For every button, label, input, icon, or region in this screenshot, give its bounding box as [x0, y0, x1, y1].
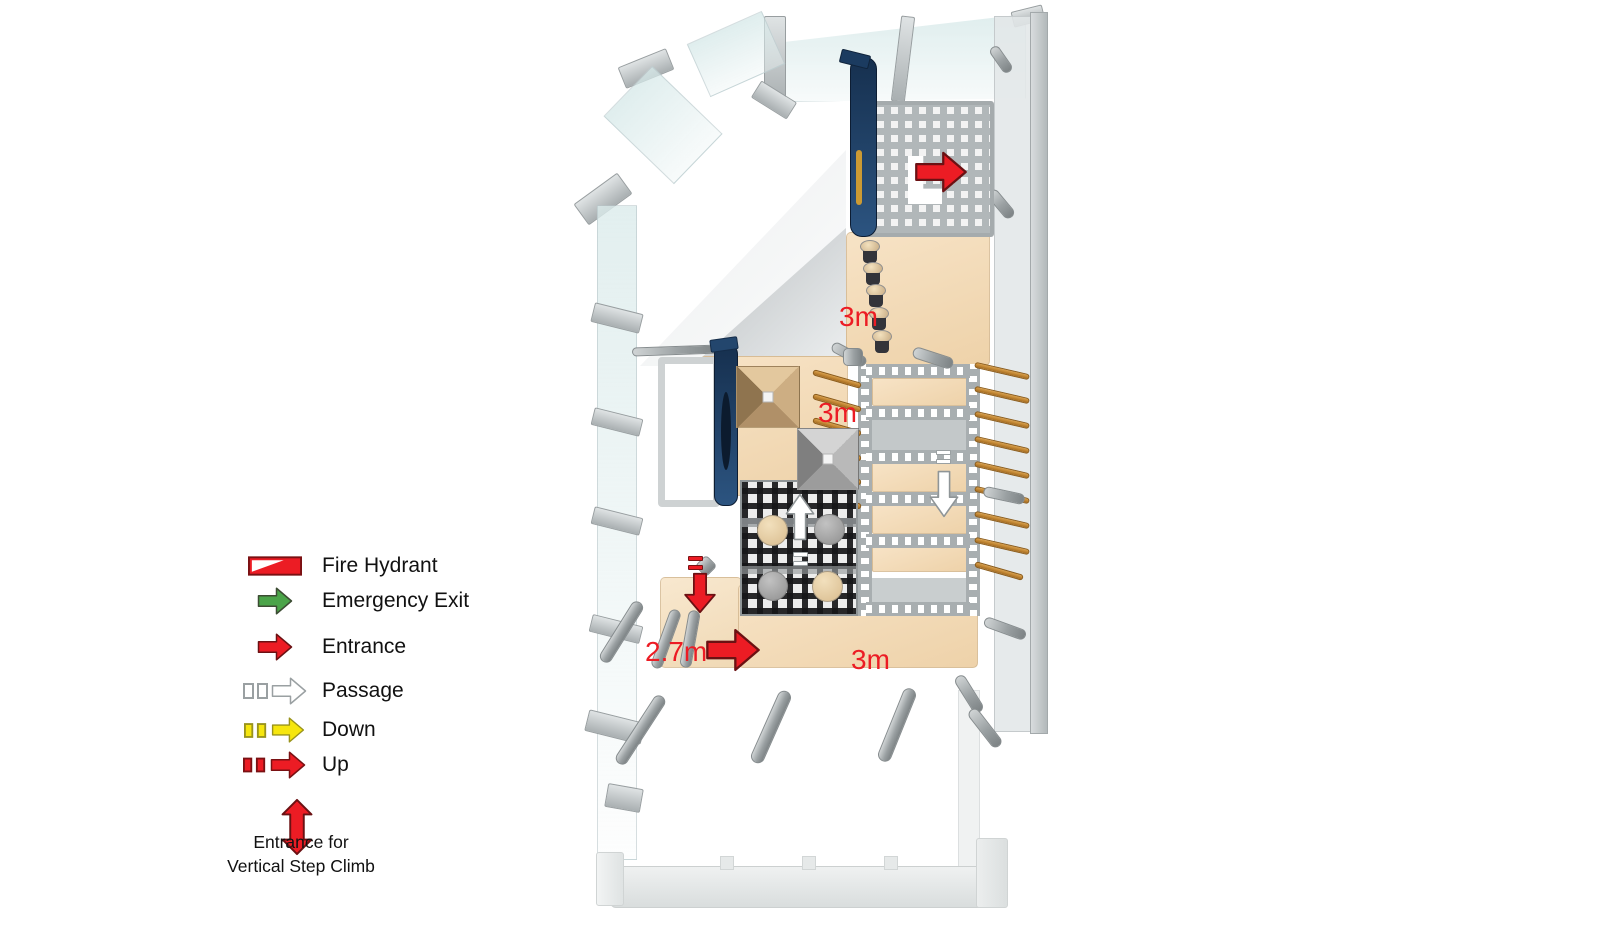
bottom-wall-band	[610, 866, 1002, 908]
trellis-bar	[866, 602, 970, 616]
dimension-label: 2.7m	[645, 638, 707, 666]
fire-hydrant-icon	[238, 556, 312, 576]
pyramid-funnel	[736, 366, 800, 428]
trellis-cell	[872, 420, 968, 450]
dimension-label: 3m	[839, 303, 878, 331]
pyramid-apex	[823, 454, 834, 465]
vertical-step-climb-label: Entrance for Vertical Step Climb	[215, 831, 387, 878]
up-marker-arrow-icon	[682, 572, 718, 614]
passage-dash	[793, 561, 808, 566]
trellis-bar	[866, 450, 970, 464]
bottom-wall-corner	[596, 852, 624, 906]
bottom-wall-corner	[976, 838, 1008, 908]
passage-arrow-icon	[238, 676, 312, 706]
down-arrow-icon	[238, 716, 312, 744]
legend-item-up: Up	[238, 750, 349, 780]
pyramid-apex	[763, 392, 774, 403]
step-cylinder	[863, 262, 883, 285]
passage-arrow-up-icon	[784, 486, 816, 548]
net-circle-pad	[812, 571, 843, 602]
passage-dash	[936, 459, 951, 464]
support-leg	[876, 686, 918, 764]
dimension-label: 3m	[851, 646, 890, 674]
passage-dash	[793, 552, 808, 557]
dimension-label: 3m	[818, 399, 857, 427]
legend-item-fire-hydrant: Fire Hydrant	[238, 554, 438, 578]
net-circle-pad	[758, 571, 788, 601]
entrance-arrow-icon	[914, 148, 968, 196]
pyramid-funnel	[797, 428, 859, 490]
bottom-wall-notch	[884, 856, 898, 870]
vertical-step-climb-line2: Vertical Step Climb	[215, 855, 387, 879]
support-peg	[843, 348, 863, 366]
passage-arrow-down-icon	[928, 468, 960, 520]
right-wall-frame	[1030, 12, 1048, 734]
legend-label: Fire Hydrant	[322, 554, 438, 578]
entrance-arrow-icon	[705, 626, 761, 674]
up-marker-dash	[688, 565, 703, 570]
legend-label: Entrance	[322, 635, 406, 659]
vertical-step-climb-line1: Entrance for	[215, 831, 387, 855]
legend-label: Down	[322, 718, 376, 742]
up-arrow-icon	[238, 750, 312, 780]
trellis-bar	[866, 534, 970, 548]
legend-label: Emergency Exit	[322, 589, 469, 613]
trellis-bar	[866, 364, 970, 378]
legend-item-passage: Passage	[238, 676, 404, 706]
slide-opening	[721, 392, 731, 470]
legend-label: Passage	[322, 679, 404, 703]
support-leg	[749, 689, 794, 766]
bottom-wall-notch	[720, 856, 734, 870]
climb-frame	[658, 357, 720, 507]
legend-item-emergency-exit: Emergency Exit	[238, 586, 469, 616]
legend-item-down: Down	[238, 716, 376, 744]
trellis-cell	[872, 546, 968, 572]
entrance-arrow-icon	[238, 632, 312, 662]
net-circle-pad	[814, 514, 845, 545]
trellis-cell	[872, 578, 968, 602]
legend-label: Up	[322, 753, 349, 777]
step-cylinder	[872, 330, 892, 353]
trellis-bar	[866, 406, 970, 420]
passage-dash	[936, 450, 951, 455]
spiral-slide-panel	[850, 57, 877, 237]
step-cylinder	[860, 240, 880, 263]
bottom-wall-notch	[802, 856, 816, 870]
net-slat	[740, 566, 858, 574]
legend-item-entrance: Entrance	[238, 632, 406, 662]
up-marker-dash	[688, 556, 703, 561]
playground-floor-plan: 3m 3m 2.7m 3m Fire Hydrant Emergency Exi…	[0, 0, 1616, 928]
trellis-frame-left	[858, 364, 872, 616]
emergency-exit-arrow-icon	[238, 586, 312, 616]
slide-accent	[856, 150, 862, 205]
trellis-cell	[872, 378, 968, 406]
